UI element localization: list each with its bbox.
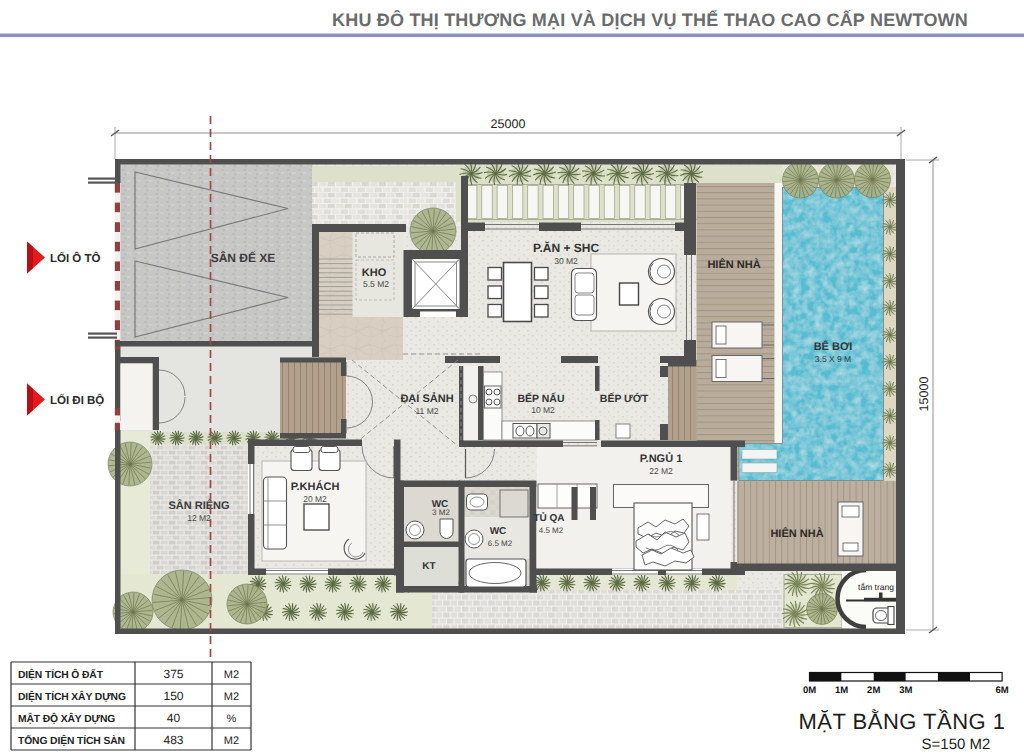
svg-text:3M: 3M bbox=[899, 685, 912, 696]
svg-text:0M: 0M bbox=[803, 685, 816, 696]
svg-text:LỐI ĐI BỘ: LỐI ĐI BỘ bbox=[50, 393, 104, 407]
svg-text:3 M2: 3 M2 bbox=[432, 508, 450, 517]
svg-text:20 M2: 20 M2 bbox=[303, 494, 327, 504]
svg-text:25000: 25000 bbox=[491, 117, 526, 131]
svg-text:KHU ĐÔ THỊ THƯƠNG MẠI VÀ DỊCH: KHU ĐÔ THỊ THƯƠNG MẠI VÀ DỊCH VỤ THỂ THA… bbox=[332, 9, 968, 30]
svg-text:SÂN RIÊNG: SÂN RIÊNG bbox=[168, 499, 229, 512]
svg-text:TỔNG DIỆN TÍCH SÀN: TỔNG DIỆN TÍCH SÀN bbox=[18, 734, 125, 747]
svg-text:5.5 M2: 5.5 M2 bbox=[363, 279, 389, 289]
svg-text:KT: KT bbox=[422, 561, 435, 572]
svg-text:SÂN ĐẾ XE: SÂN ĐẾ XE bbox=[211, 251, 276, 265]
svg-text:150: 150 bbox=[163, 689, 183, 703]
svg-text:4.5 M2: 4.5 M2 bbox=[539, 526, 564, 535]
svg-text:TỦ QA: TỦ QA bbox=[533, 512, 564, 524]
svg-text:DIỆN TÍCH XÂY DỰNG: DIỆN TÍCH XÂY DỰNG bbox=[18, 690, 126, 703]
svg-text:M2: M2 bbox=[224, 691, 239, 703]
svg-text:BỂ BƠI: BỂ BƠI bbox=[814, 340, 853, 353]
svg-text:P.ĂN + SHC: P.ĂN + SHC bbox=[533, 241, 599, 255]
svg-text:M2: M2 bbox=[224, 669, 239, 681]
svg-text:30 M2: 30 M2 bbox=[554, 256, 578, 266]
svg-text:483: 483 bbox=[163, 733, 183, 747]
svg-text:3.5 X 9 M: 3.5 X 9 M bbox=[815, 354, 851, 364]
svg-text:tắm trang: tắm trang bbox=[858, 582, 894, 592]
svg-text:2M: 2M bbox=[867, 685, 880, 696]
svg-text:BẾP ƯỚT: BẾP ƯỚT bbox=[600, 392, 649, 405]
svg-text:BẾP NẤU: BẾP NẤU bbox=[517, 392, 564, 405]
svg-text:%: % bbox=[227, 713, 237, 725]
svg-text:MẶT BẰNG TẦNG 1: MẶT BẰNG TẦNG 1 bbox=[798, 709, 1005, 734]
svg-text:15000: 15000 bbox=[917, 377, 931, 412]
svg-text:HIÊN NHÀ: HIÊN NHÀ bbox=[707, 258, 760, 271]
svg-text:S=150 M2: S=150 M2 bbox=[922, 736, 991, 753]
svg-text:MẬT ĐỘ XÂY DỰNG: MẬT ĐỘ XÂY DỰNG bbox=[18, 712, 115, 725]
svg-text:HIÊN NHÀ: HIÊN NHÀ bbox=[770, 527, 823, 540]
svg-text:11 M2: 11 M2 bbox=[416, 406, 439, 416]
svg-text:WC: WC bbox=[490, 526, 507, 537]
svg-text:P.NGỦ 1: P.NGỦ 1 bbox=[640, 452, 683, 465]
svg-text:ĐẠI SẢNH: ĐẠI SẢNH bbox=[400, 392, 453, 405]
svg-text:375: 375 bbox=[163, 667, 183, 681]
svg-text:12 M2: 12 M2 bbox=[187, 513, 211, 523]
svg-text:P.KHÁCH: P.KHÁCH bbox=[291, 480, 340, 493]
svg-text:40: 40 bbox=[167, 711, 181, 725]
svg-text:6M: 6M bbox=[995, 685, 1008, 696]
svg-text:DIỆN TÍCH Ô ĐẤT: DIỆN TÍCH Ô ĐẤT bbox=[18, 668, 104, 681]
svg-text:10 M2: 10 M2 bbox=[531, 405, 555, 415]
svg-text:LỐI Ô TÔ: LỐI Ô TÔ bbox=[50, 251, 101, 265]
svg-text:1M: 1M bbox=[835, 685, 848, 696]
svg-text:22 M2: 22 M2 bbox=[649, 466, 673, 476]
svg-text:M2: M2 bbox=[224, 735, 239, 747]
svg-text:6.5 M2: 6.5 M2 bbox=[488, 539, 513, 548]
svg-text:KHO: KHO bbox=[362, 267, 387, 279]
